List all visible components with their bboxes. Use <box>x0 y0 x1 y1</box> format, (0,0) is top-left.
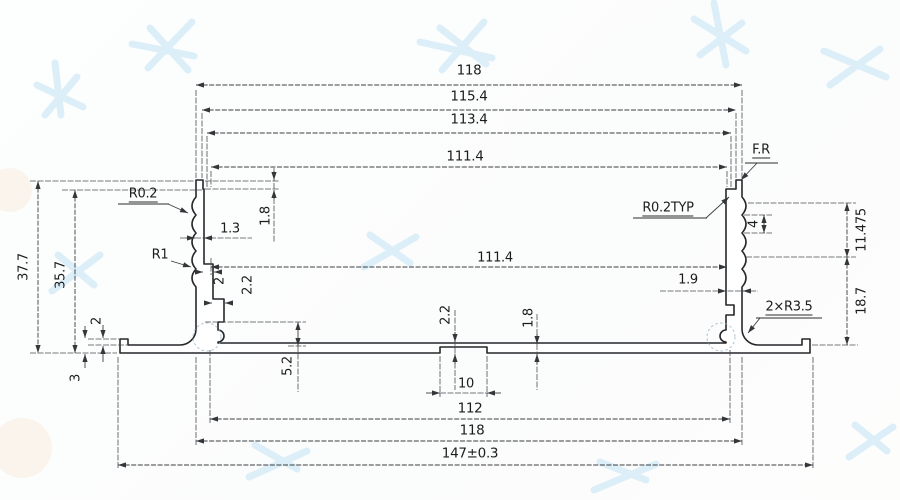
dim-flange-end-height: 3 <box>70 374 83 382</box>
dim-step-height: 5.2 <box>282 356 295 376</box>
drawing-svg <box>0 0 900 500</box>
dim-top-width-third: 113.4 <box>450 114 487 127</box>
callout-corner-finish: F.R <box>752 144 770 159</box>
paper-watermark <box>0 3 893 490</box>
dim-top-width-second: 115.4 <box>450 91 487 104</box>
dim-mid-inner-width: 111.4 <box>477 252 513 265</box>
dim-lip-height: 1.8 <box>260 206 273 226</box>
dim-groove-wall: 1.8 <box>523 308 536 328</box>
dim-lip-width: 1.3 <box>220 223 240 236</box>
dim-rib-step-1: 2 <box>214 277 227 285</box>
dim-bottom-inner-width: 112 <box>458 403 483 416</box>
dim-bottom-outer-width: 118 <box>460 425 485 438</box>
callout-groove-radius: R1 <box>152 249 169 262</box>
dim-height-overall: 37.7 <box>18 253 31 281</box>
dim-serration-zone-height: 11.475 <box>856 208 869 252</box>
dim-serration-pitch: 4 <box>748 220 761 228</box>
dim-height-inner: 35.7 <box>55 261 68 289</box>
dim-bottom-slot-width: 10 <box>458 378 474 391</box>
callout-serration-radius-typ: R0.2TYP <box>642 202 693 217</box>
callout-serration-radius: R0.2 <box>129 188 158 203</box>
dim-top-inner-width: 111.4 <box>446 151 483 164</box>
extrusion-profile-outline <box>120 180 810 353</box>
drawing-canvas: 118 115.4 113.4 111.4 F.R R0.2 R1 1.3 1.… <box>0 0 900 500</box>
dim-wall-thickness: 1.9 <box>678 274 698 287</box>
callout-corner-radius: 2×R3.5 <box>765 301 812 316</box>
dim-top-overall-width: 118 <box>457 65 482 78</box>
dim-lower-wall-height: 18.7 <box>856 287 869 315</box>
dim-flange-thickness: 2 <box>91 317 104 325</box>
dim-base-thickness: 2.2 <box>440 305 453 325</box>
dim-rib-step-2: 2.2 <box>242 275 255 295</box>
dim-bottom-overall-width: 147±0.3 <box>442 448 498 461</box>
